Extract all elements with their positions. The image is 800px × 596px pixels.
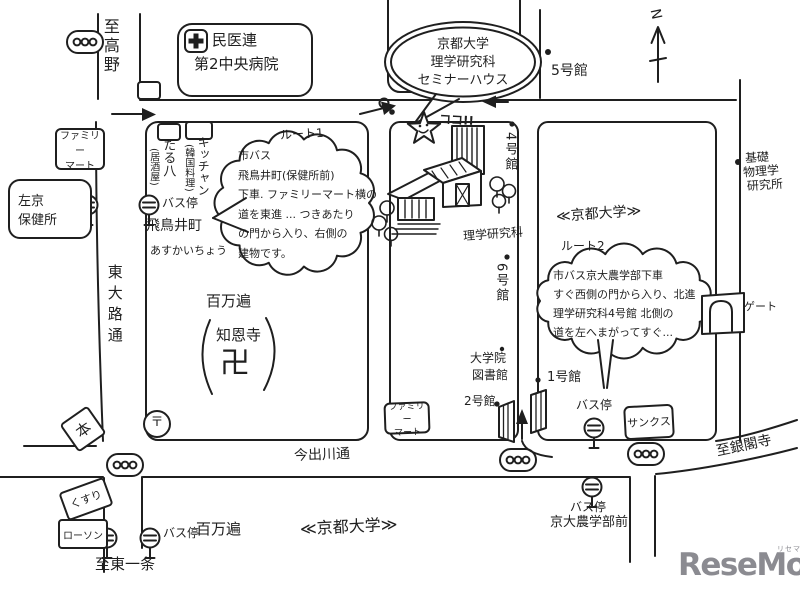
higashioji-street-label: 東大路通 (105, 264, 123, 348)
route1-text: 市バス 飛鳥井町(保健所前) 下車. ファミリーマート横の 道を東進 ... つ… (238, 146, 377, 263)
hospital-name-line2: 第2中央病院 (194, 56, 279, 74)
familymart-south-line2: マート (394, 424, 421, 438)
east-busstop-label: バス停 (576, 398, 612, 412)
bldg4-label: 4号館 (502, 132, 517, 172)
nogakubu-busstop-name: 京大農学部前 (550, 515, 628, 530)
route1-title: ルート1 (280, 126, 324, 142)
hospital-cross-icon (185, 30, 207, 52)
chionji-temple-label: 知恩寺 (216, 327, 261, 345)
bus-stop-icon (585, 419, 604, 449)
here-star-icon (408, 112, 440, 143)
north-arrow-icon (650, 27, 666, 82)
route1-line6: 建物です。 (238, 244, 377, 264)
route2-line2: すぐ西側の門から入り、北進 (553, 285, 696, 304)
hokenjo-line2: 保健所 (18, 209, 57, 228)
kitchen-note: (韓国料理) (182, 144, 194, 192)
bldg1-label: 1号館 (547, 370, 581, 385)
familymart-south-line1: ファミリー (385, 398, 428, 425)
book-store-label: 本 (71, 416, 95, 442)
familymart-south: ファミリー マート (383, 401, 430, 435)
bus-stop-icon (141, 529, 160, 559)
asukai-busstop-kana: あすかいちょう (150, 245, 227, 258)
lawson-label: ローソン (63, 527, 103, 542)
sakyo-health-center: 左京 保健所 (8, 179, 92, 239)
balloon-line1: 京都大学 (395, 36, 531, 54)
to-higashi-ichijo-label: 至東一条 (95, 556, 155, 574)
hyakumanben-busstop-name: 百万遍 (196, 521, 241, 539)
nogakubu-busstop-label: バス停 (570, 500, 606, 514)
route1-line3: 下車. ファミリーマート横の (238, 185, 377, 205)
route1-line4: 道を東進 ... つきあたり (238, 205, 377, 225)
route1-line1: 市バス (238, 146, 377, 166)
asukai-busstop-name: 飛鳥井町 (146, 218, 202, 235)
taruhachi-note: (居酒屋) (147, 148, 159, 186)
here-marker-label: ココ!! (439, 112, 475, 128)
sunkus-store: サンクス (623, 404, 675, 441)
route1-line5: の門から入り、右側の (238, 224, 377, 244)
kiso-physics-institute: 基礎 物理学 研究所 (745, 149, 784, 194)
route1-line2: 飛鳥井町(保健所前) (238, 166, 377, 186)
grad-library-line2: 図書館 (472, 368, 508, 382)
route2-line3: 理学研究科4号館 北側の (553, 304, 696, 323)
bldg5-label: 5号館 (551, 63, 588, 80)
hand-drawn-campus-map: 至高野 N 民医連 第2中央病院 ファミリー マート 左京 保健所 たる八 (居… (0, 0, 800, 596)
gate-arch-icon (702, 293, 744, 334)
resemom-logo: ReseMom. リセマム (678, 550, 800, 581)
hospital-name-line1: 民医連 (212, 32, 257, 50)
kiso-line3: 研究所 (747, 177, 784, 194)
familymart-north-line2: マート (65, 157, 95, 172)
to-takano-label: 至高野 (100, 18, 119, 75)
asukai-busstop-label: バス停 (162, 196, 198, 210)
pharmacy-label: くすり (68, 486, 104, 512)
route2-line1: 市バス京大農学部下車 (553, 266, 696, 285)
hokenjo-line1: 左京 (18, 190, 44, 209)
sunkus-label: サンクス (627, 413, 671, 431)
hyakumanben-busstop-label: バス停 (163, 526, 199, 540)
imadegawa-street-label: 今出川通 (294, 446, 351, 464)
route2-title: ルート2 (561, 239, 605, 253)
hospital-annex (138, 82, 160, 99)
bldg2-label: 2号館 (464, 394, 496, 408)
traffic-light-icon (500, 449, 536, 471)
post-office-symbol: 〒 (146, 415, 168, 430)
hyakumanben-area-label: 百万遍 (206, 293, 251, 311)
gate-label: ゲート (744, 301, 777, 314)
route2-text: 市バス京大農学部下車 すぐ西側の門から入り、北進 理学研究科4号館 北側の 道を… (553, 266, 696, 342)
kitchen-name: キッチャン (196, 136, 210, 196)
bldg6-label: 6号館 (493, 263, 508, 303)
familymart-north: ファミリー マート (55, 128, 105, 170)
manji-temple-symbol: 卍 (220, 346, 250, 381)
traffic-light-icon (628, 443, 664, 465)
familymart-north-line1: ファミリー (57, 127, 103, 157)
lawson-store: ローソン (58, 519, 108, 549)
seminar-house-sketch (388, 126, 484, 234)
grad-library-line1: 大学院 (470, 351, 506, 365)
traffic-light-icon (107, 454, 143, 476)
taruhachi-name: たる八 (160, 138, 175, 177)
balloon-line3: セミナーハウス (395, 72, 531, 90)
traffic-light-icon (67, 31, 103, 53)
balloon-line2: 理学研究科 (395, 54, 531, 72)
campus-gate-doors (499, 390, 552, 457)
seminar-balloon-text: 京都大学 理学研究科 セミナーハウス (395, 36, 531, 90)
route2-line4: 道を左へまがってすぐ... (553, 323, 696, 342)
resemom-logo-ruby: リセマム (777, 546, 800, 553)
